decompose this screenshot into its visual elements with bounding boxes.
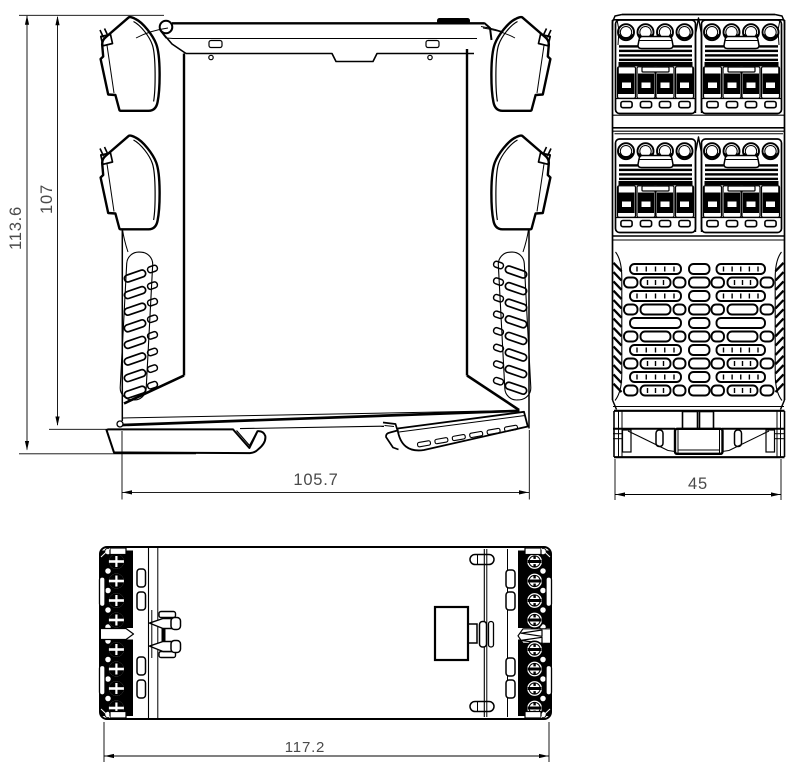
svg-text:113.6: 113.6 (7, 206, 25, 250)
svg-text:45: 45 (688, 475, 708, 493)
svg-text:105.7: 105.7 (293, 471, 338, 489)
svg-text:117.2: 117.2 (285, 739, 325, 756)
svg-text:107: 107 (38, 184, 56, 214)
